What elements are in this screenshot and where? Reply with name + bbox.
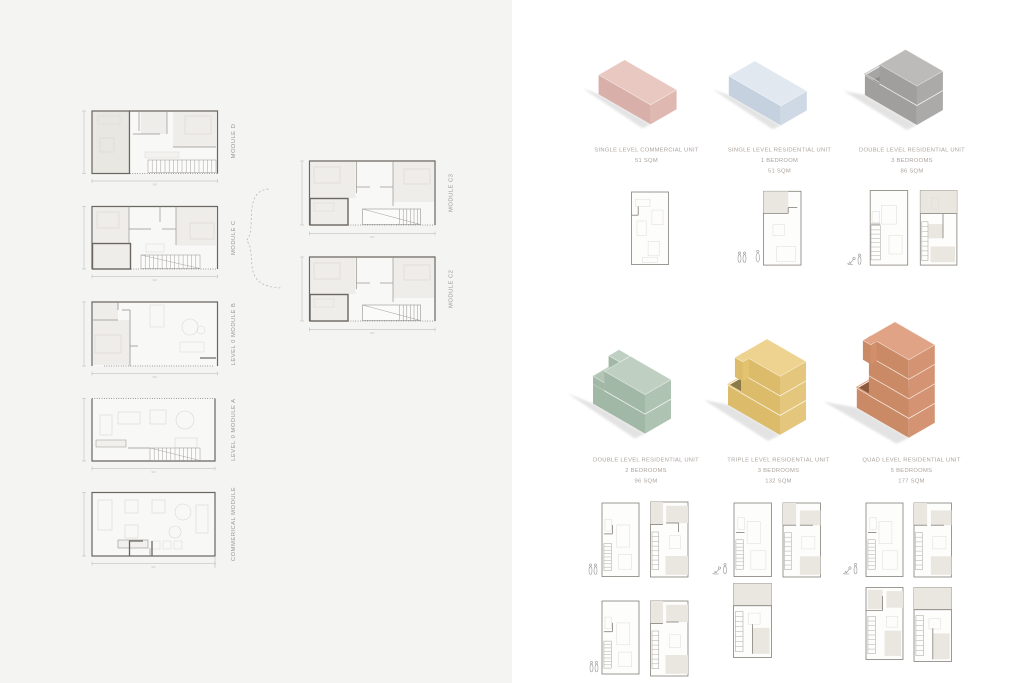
svg-text:177 SQM: 177 SQM bbox=[898, 479, 924, 485]
svg-text:900: 900 bbox=[370, 331, 375, 335]
svg-text:MODULE C2: MODULE C2 bbox=[449, 270, 455, 308]
svg-text:3 BEDROOMS: 3 BEDROOMS bbox=[758, 468, 799, 474]
svg-text:MODULE C: MODULE C bbox=[231, 220, 237, 255]
svg-text:3 BEDROOMS: 3 BEDROOMS bbox=[891, 158, 932, 164]
svg-text:900: 900 bbox=[153, 183, 158, 187]
svg-text:51 SQM: 51 SQM bbox=[768, 169, 791, 175]
svg-text:900: 900 bbox=[151, 470, 156, 474]
svg-text:132 SQM: 132 SQM bbox=[765, 479, 791, 485]
svg-text:DOUBLE LEVEL RESIDENTIAL UNIT: DOUBLE LEVEL RESIDENTIAL UNIT bbox=[859, 148, 965, 154]
svg-text:DOUBLE LEVEL RESIDENTIAL UNIT: DOUBLE LEVEL RESIDENTIAL UNIT bbox=[593, 458, 699, 464]
svg-text:900: 900 bbox=[153, 278, 158, 282]
svg-text:86 SQM: 86 SQM bbox=[901, 169, 924, 175]
svg-text:LEVEL 0 MODULE A: LEVEL 0 MODULE A bbox=[231, 399, 237, 461]
svg-text:900: 900 bbox=[370, 235, 375, 239]
svg-text:COMMERICAL MODULE: COMMERICAL MODULE bbox=[231, 487, 237, 561]
svg-text:96 SQM: 96 SQM bbox=[635, 479, 658, 485]
svg-text:51 SQM: 51 SQM bbox=[635, 158, 658, 164]
svg-text:900: 900 bbox=[153, 375, 158, 379]
svg-text:TRIPLE LEVEL RESIDENTIAL UNIT: TRIPLE LEVEL RESIDENTIAL UNIT bbox=[727, 458, 830, 464]
svg-text:MODULE C3: MODULE C3 bbox=[449, 173, 455, 212]
svg-text:SINGLE LEVEL RESIDENTIAL UNIT: SINGLE LEVEL RESIDENTIAL UNIT bbox=[728, 148, 832, 154]
svg-text:SINGLE LEVEL COMMERCIAL UNIT: SINGLE LEVEL COMMERCIAL UNIT bbox=[594, 148, 699, 154]
svg-text:5 BEDROOMS: 5 BEDROOMS bbox=[891, 468, 932, 474]
svg-text:LEVEL 0 MODULE B: LEVEL 0 MODULE B bbox=[231, 303, 237, 366]
svg-text:1 BEDROOM: 1 BEDROOM bbox=[761, 158, 798, 164]
svg-text:900: 900 bbox=[151, 565, 156, 569]
svg-text:2 BEDROOMS: 2 BEDROOMS bbox=[625, 468, 666, 474]
svg-text:QUAD LEVEL RESIDENTIAL UNIT: QUAD LEVEL RESIDENTIAL UNIT bbox=[862, 458, 960, 464]
svg-text:MODULE D: MODULE D bbox=[231, 124, 237, 159]
